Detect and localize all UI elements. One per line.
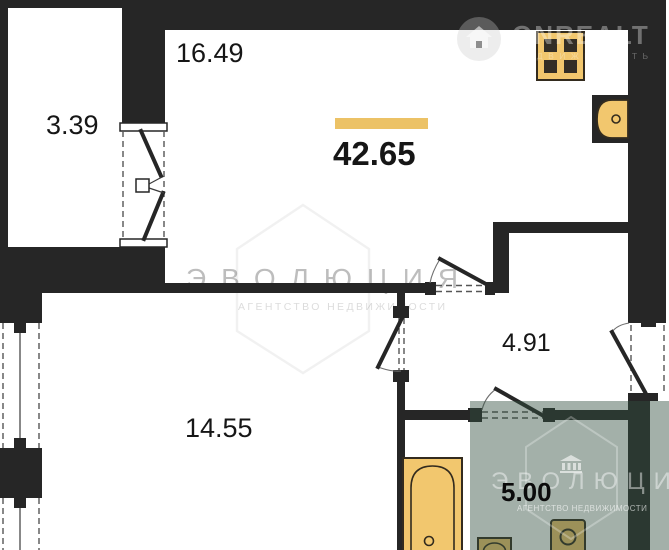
bathtub-icon [403,458,462,550]
label-bedroom-area: 14.55 [185,413,253,444]
window-2 [3,498,39,550]
label-kitchen-area: 16.49 [176,38,244,69]
watermark-onrealt: ONREALT НЕДВИЖИМОСТЬ [455,14,669,62]
watermark-evolution-badge: ЭВОЛЮЦИЯ АГЕНТСТВО НЕДВИЖИМОСТИ [470,401,669,550]
kitchen-sink-icon [592,95,633,143]
floor-plan: ЭВОЛЮЦИЯ АГЕНТСТВО НЕДВИЖИМОСТИ [0,0,669,550]
label-hallway-area: 4.91 [502,329,551,358]
window-1 [3,323,39,448]
onrealt-subtitle: НЕДВИЖИМОСТЬ [514,51,654,61]
balcony-door [120,123,167,247]
label-total-area: 42.65 [333,135,416,173]
label-balcony-area: 3.39 [46,110,99,141]
onrealt-house-icon [455,14,503,62]
label-bathroom-area: 5.00 [501,477,552,508]
total-area-accent-bar [335,118,428,129]
entrance-door [612,323,664,392]
onrealt-title: ONREALT [512,20,650,51]
bedroom-door [378,318,404,371]
kitchen-door [430,259,486,292]
